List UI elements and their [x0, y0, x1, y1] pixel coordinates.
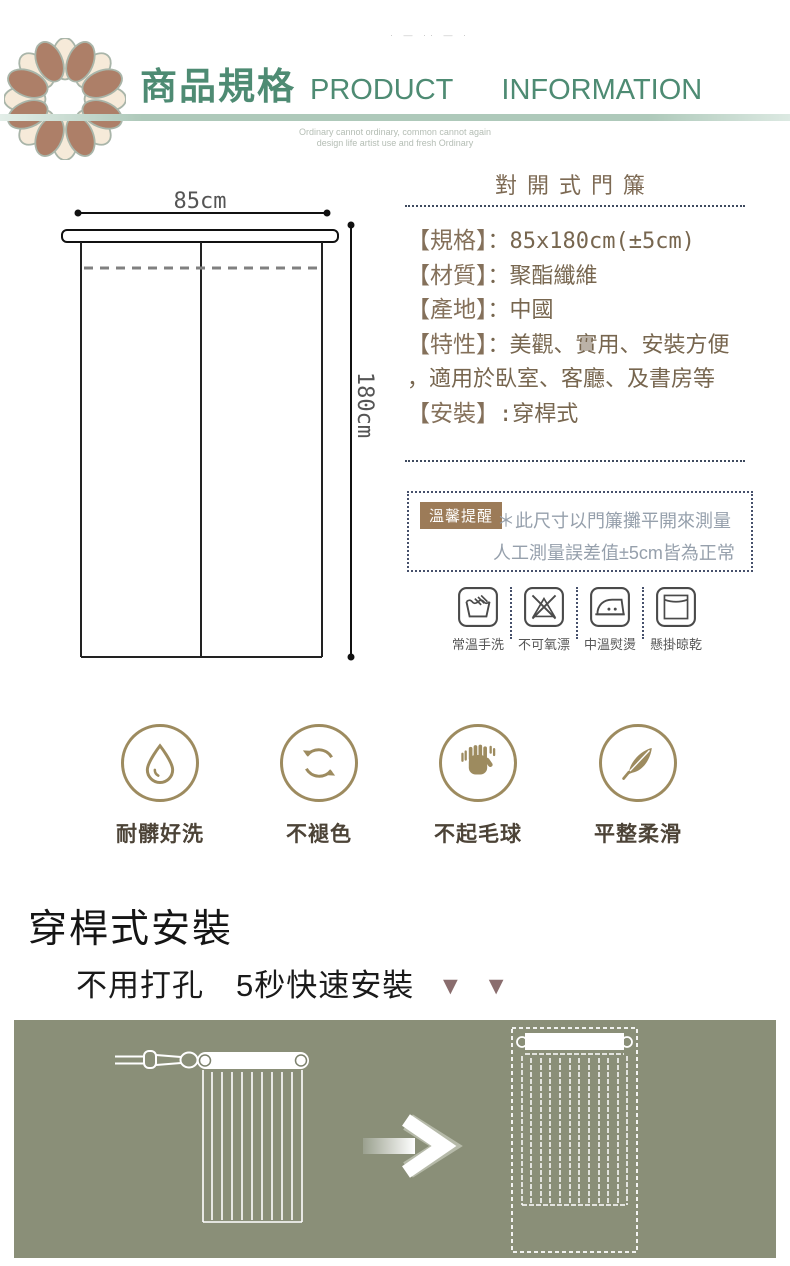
feature-circle — [599, 724, 677, 802]
spec-label: 【安裝】 — [407, 400, 499, 426]
spec-value: :穿桿式 — [499, 402, 578, 427]
feature-label: 平整柔滑 — [578, 818, 698, 848]
top-watermark: · — ·· — · — [290, 30, 570, 40]
feature-label: 耐髒好洗 — [100, 818, 220, 848]
dotted-rule-middle — [405, 460, 745, 462]
spec-line: 【特性】：美觀、實用、安裝方便 — [407, 328, 767, 363]
spec-line: ，適用於臥室、客廳、及書房等 — [407, 362, 767, 397]
hand-wash-icon — [457, 586, 499, 628]
reminder-badge: 溫馨提醒 — [420, 502, 502, 529]
care-item-hand-wash: 常溫手洗 — [446, 586, 510, 653]
feature-circle — [121, 724, 199, 802]
page-header: 商品規格 PRODUCT INFORMATION — [140, 56, 702, 110]
slogan-line-2: design life artist use and fresh Ordinar… — [0, 138, 790, 149]
spec-line: 【材質】：聚酯纖維 — [407, 259, 767, 294]
feature-circle — [439, 724, 517, 802]
spec-label: 【產地】 — [407, 296, 488, 322]
spec-list: 【規格】：85x180cm(±5cm) 【材質】：聚酯纖維 【產地】：中國 【特… — [407, 224, 767, 431]
spec-value: ：85x180cm(±5cm) — [488, 229, 695, 254]
installation-illustration — [14, 1020, 776, 1258]
spec-line: 【規格】：85x180cm(±5cm) — [407, 224, 767, 259]
care-label: 中溫熨燙 — [578, 634, 642, 653]
water-drop-icon — [137, 740, 183, 786]
feature-circle — [280, 724, 358, 802]
install-section-title: 穿桿式安裝 — [28, 898, 233, 954]
spec-label: 【材質】 — [407, 262, 488, 288]
care-label: 常溫手洗 — [446, 634, 510, 653]
header-slogan: Ordinary cannot ordinary, common cannot … — [0, 127, 790, 149]
spec-label: 【規格】 — [407, 227, 488, 253]
header-title-en-information: INFORMATION — [501, 74, 702, 107]
feature-no-fade: 不褪色 — [259, 724, 379, 848]
care-symbols-row: 常溫手洗 不可氧漂 中溫熨燙 — [446, 586, 708, 653]
spec-value: ：美觀、實用、安裝方便 — [488, 333, 730, 358]
header-underline — [0, 114, 790, 121]
width-dimension-label: 85cm — [174, 189, 227, 214]
spec-value: ，適用於臥室、客廳、及書房等 — [407, 367, 715, 392]
care-item-no-bleach: 不可氧漂 — [512, 586, 576, 653]
iron-medium-icon — [589, 586, 631, 628]
reminder-line-2: 人工測量誤差值±5cm皆為正常 — [493, 539, 735, 565]
warm-reminder-box: 溫馨提醒 ＊此尺寸以門簾攤平開來測量 人工測量誤差值±5cm皆為正常 — [407, 491, 753, 572]
header-title-zh: 商品規格 — [140, 56, 296, 110]
hang-dry-icon — [655, 586, 697, 628]
care-label: 不可氧漂 — [512, 634, 576, 653]
installation-illustration-panel — [14, 1020, 776, 1258]
feather-icon — [615, 740, 661, 786]
feature-washable: 耐髒好洗 — [100, 724, 220, 848]
care-item-hang-dry: 懸掛晾乾 — [644, 586, 708, 653]
spec-value: ：中國 — [488, 298, 554, 323]
curtain-dimension-diagram: 85cm 180cm — [40, 175, 390, 670]
feature-label: 不起毛球 — [418, 818, 538, 848]
header-title-en-product: PRODUCT — [310, 74, 453, 107]
spec-line: 【產地】：中國 — [407, 293, 767, 328]
care-item-iron: 中溫熨燙 — [578, 586, 642, 653]
no-bleach-icon — [523, 586, 565, 628]
care-label: 懸掛晾乾 — [644, 634, 708, 653]
spec-label: 【特性】 — [407, 331, 488, 357]
product-info-page: · — ·· — · — [0, 0, 790, 1266]
feature-smooth: 平整柔滑 — [578, 724, 698, 848]
reminder-line-1: ＊此尺寸以門簾攤平開來測量 — [497, 507, 731, 533]
spec-value: ：聚酯纖維 — [488, 264, 598, 289]
install-section-subtitle: 不用打孔 5秒快速安裝 — [76, 960, 414, 1005]
height-dimension-label: 180cm — [352, 372, 377, 438]
product-title: 對開式門簾 — [405, 168, 745, 200]
feature-no-pilling: 不起毛球 — [418, 724, 538, 848]
down-arrows-icon: ▼ ▼ — [438, 972, 508, 1001]
feature-label: 不褪色 — [259, 818, 379, 848]
dotted-rule-top — [405, 205, 745, 207]
refresh-arrows-icon — [296, 740, 342, 786]
spec-line: 【安裝】:穿桿式 — [407, 397, 767, 432]
slogan-line-1: Ordinary cannot ordinary, common cannot … — [0, 127, 790, 138]
hand-icon — [455, 740, 501, 786]
